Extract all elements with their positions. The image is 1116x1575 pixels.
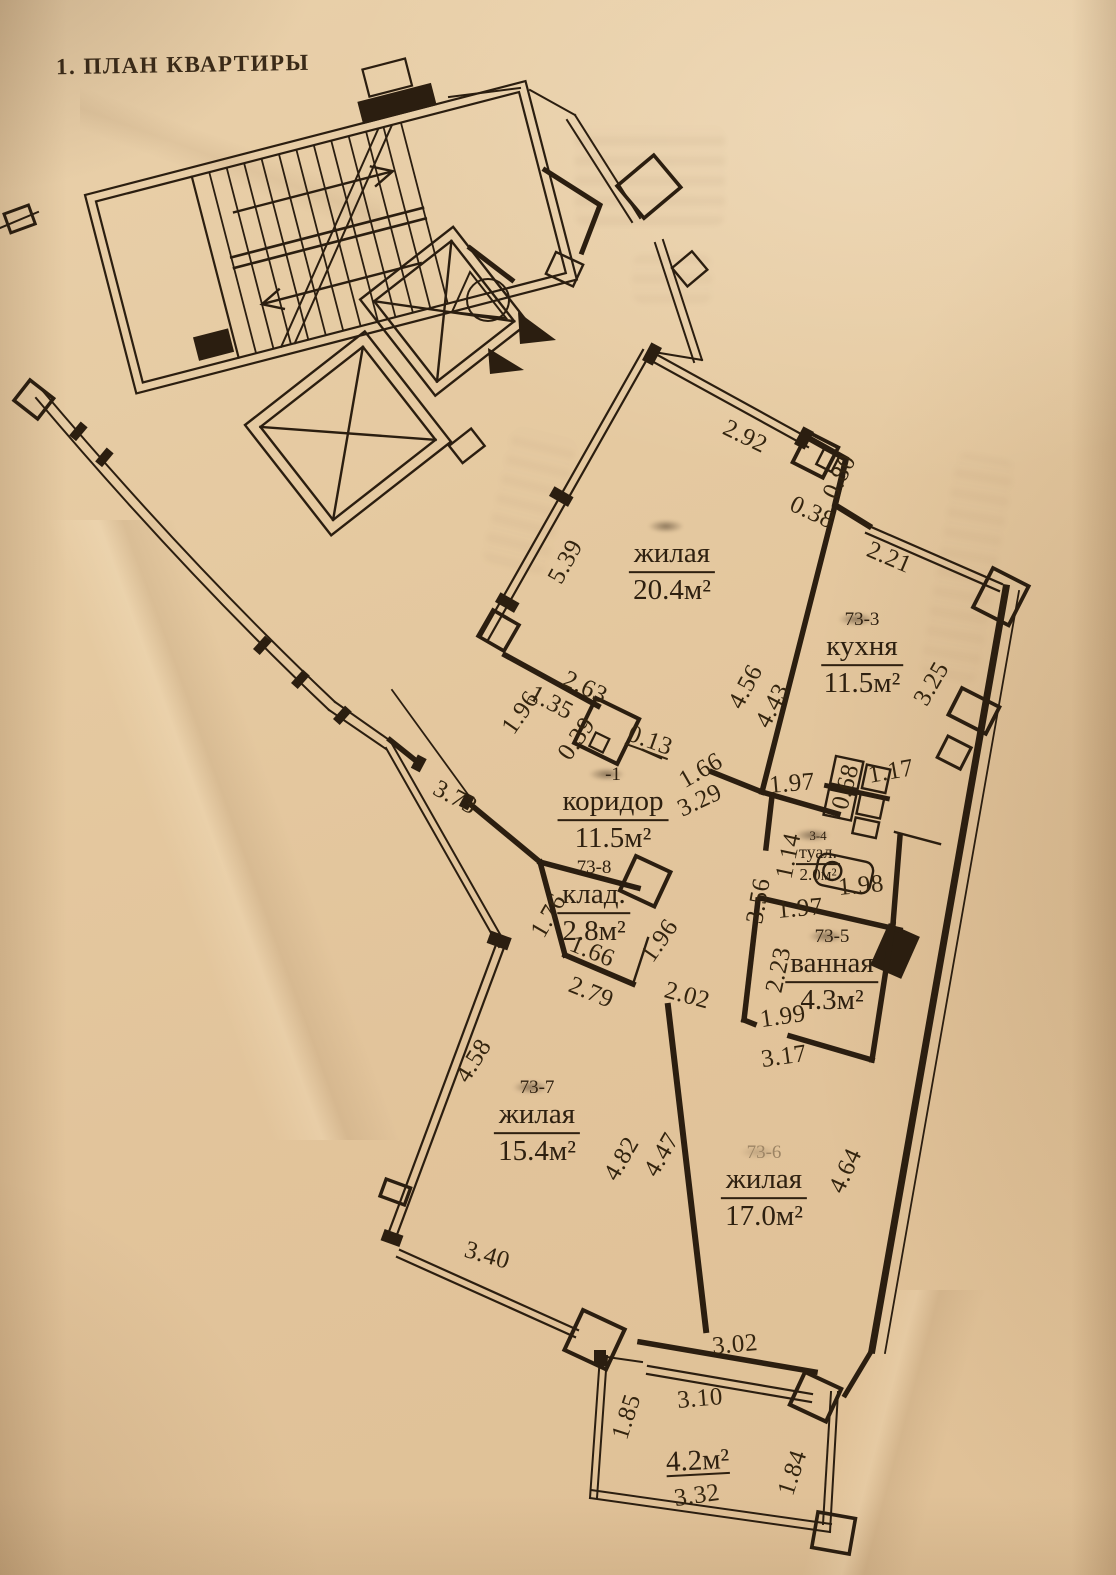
elevator-shafts [228,227,572,554]
staircase [72,31,577,394]
room-name: жилая [721,1164,807,1199]
dimension-label: 1.98 [837,870,885,902]
room-area: 2.0м² [796,866,840,885]
corridor-left-wall [386,744,505,947]
room-number: 73-3 [821,610,903,631]
living15-bottom-window-wall [397,1250,625,1369]
room-label-living-room-17: 73-6жилая17.0м² [721,1143,807,1233]
dimension-label: 3.10 [676,1383,724,1415]
left-wall-stubs [0,205,54,419]
living15-window-wall [380,931,512,1247]
room-number: 73-8 [557,858,630,879]
room-area: 17.0м² [721,1201,807,1233]
scanned-floor-plan-page: 1. ПЛАН КВАРТИРЫ [0,0,1116,1575]
room-name: кухня [821,631,903,666]
room-name: жилая [629,538,715,573]
room-area: 15.4м² [494,1136,580,1168]
room-number [629,517,715,538]
erased-smudge [506,1079,556,1097]
room-label-balcony: 4.2м² [664,1421,730,1479]
dimension-label: 1.97 [768,768,816,800]
room-area: 11.5м² [821,668,903,700]
erased-smudge [801,928,851,946]
room-number: -1 [558,765,669,786]
living20-window-wall [478,350,650,651]
erased-smudge [641,518,691,536]
lobby-walls [449,88,707,374]
dimension-label: 3.02 [711,1329,759,1361]
right-outer-wall [870,588,1019,1353]
erased-smudge [582,766,632,784]
room-name: коридор [558,786,669,821]
room-name: ванная [785,948,878,983]
room-number: 73-6 [721,1143,807,1164]
room-number: 73-7 [494,1078,580,1099]
mid-divider-wall [668,1006,706,1330]
dimension-label: 1.97 [776,893,824,925]
erased-smudge [831,611,881,629]
room-label-living-room-20: жилая20.4м² [629,517,715,607]
left-facade-wall [36,390,392,749]
room-number: 73-5 [785,927,878,948]
room-area: 4.2м² [665,1444,730,1479]
room-name: жилая [494,1099,580,1134]
room-label-living-room-15: 73-7жилая15.4м² [494,1078,580,1168]
erased-smudge [733,1144,783,1162]
room-label-kitchen: 73-3кухня11.5м² [821,610,903,700]
room-number [664,1421,728,1445]
garbage-chute-icon [452,272,509,321]
room-label-corridor: -1коридор11.5м² [558,765,669,855]
room-area: 11.5м² [558,823,669,855]
room-area: 20.4м² [629,575,715,607]
